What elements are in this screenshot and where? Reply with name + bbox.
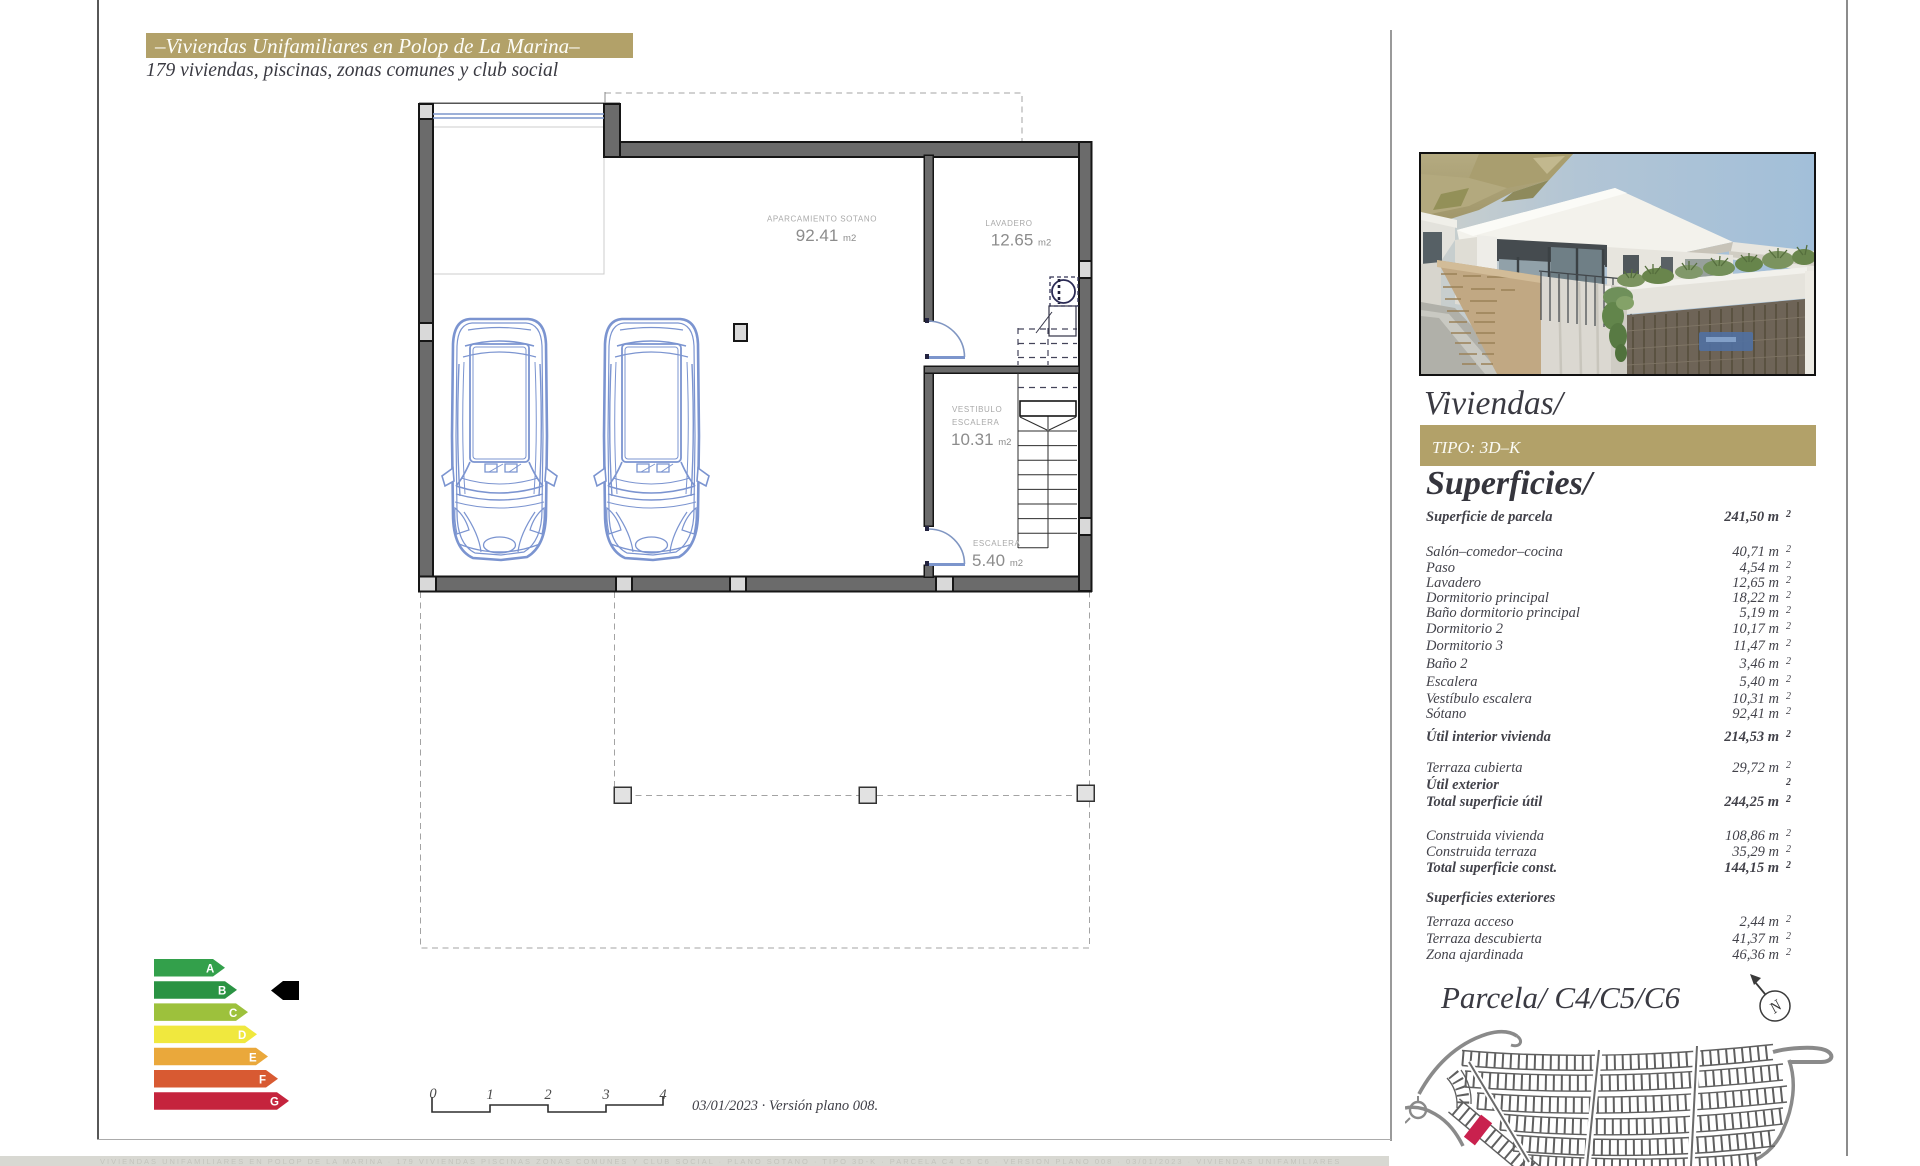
svg-text:B: B (218, 986, 226, 998)
svg-text:03/01/2023 · Versión plano 008: 03/01/2023 · Versión plano 008. (692, 1098, 878, 1114)
svg-text:1: 1 (486, 1087, 493, 1103)
svg-text:ESCALERA: ESCALERA (952, 418, 1000, 427)
svg-text:G: G (270, 1097, 279, 1109)
svg-text:D: D (238, 1030, 246, 1042)
svg-text:10.31 m2: 10.31 m2 (951, 430, 1011, 449)
svg-text:3: 3 (601, 1087, 609, 1103)
svg-text:N: N (1766, 996, 1787, 1017)
svg-text:4: 4 (659, 1087, 666, 1103)
svg-text:C: C (229, 1008, 237, 1020)
svg-text:5.40 m2: 5.40 m2 (972, 551, 1023, 570)
svg-text:92.41 m2: 92.41 m2 (796, 226, 856, 245)
svg-text:A: A (206, 964, 214, 976)
svg-text:E: E (249, 1052, 257, 1064)
svg-text:VESTIBULO: VESTIBULO (952, 405, 1002, 414)
svg-text:2: 2 (544, 1087, 551, 1103)
svg-text:LAVADERO: LAVADERO (985, 219, 1032, 228)
svg-text:APARCAMIENTO SOTANO: APARCAMIENTO SOTANO (767, 215, 877, 224)
svg-text:12.65 m2: 12.65 m2 (991, 231, 1051, 250)
svg-text:ESCALERA: ESCALERA (973, 539, 1021, 548)
svg-text:0: 0 (429, 1086, 437, 1102)
svg-text:F: F (259, 1075, 266, 1087)
